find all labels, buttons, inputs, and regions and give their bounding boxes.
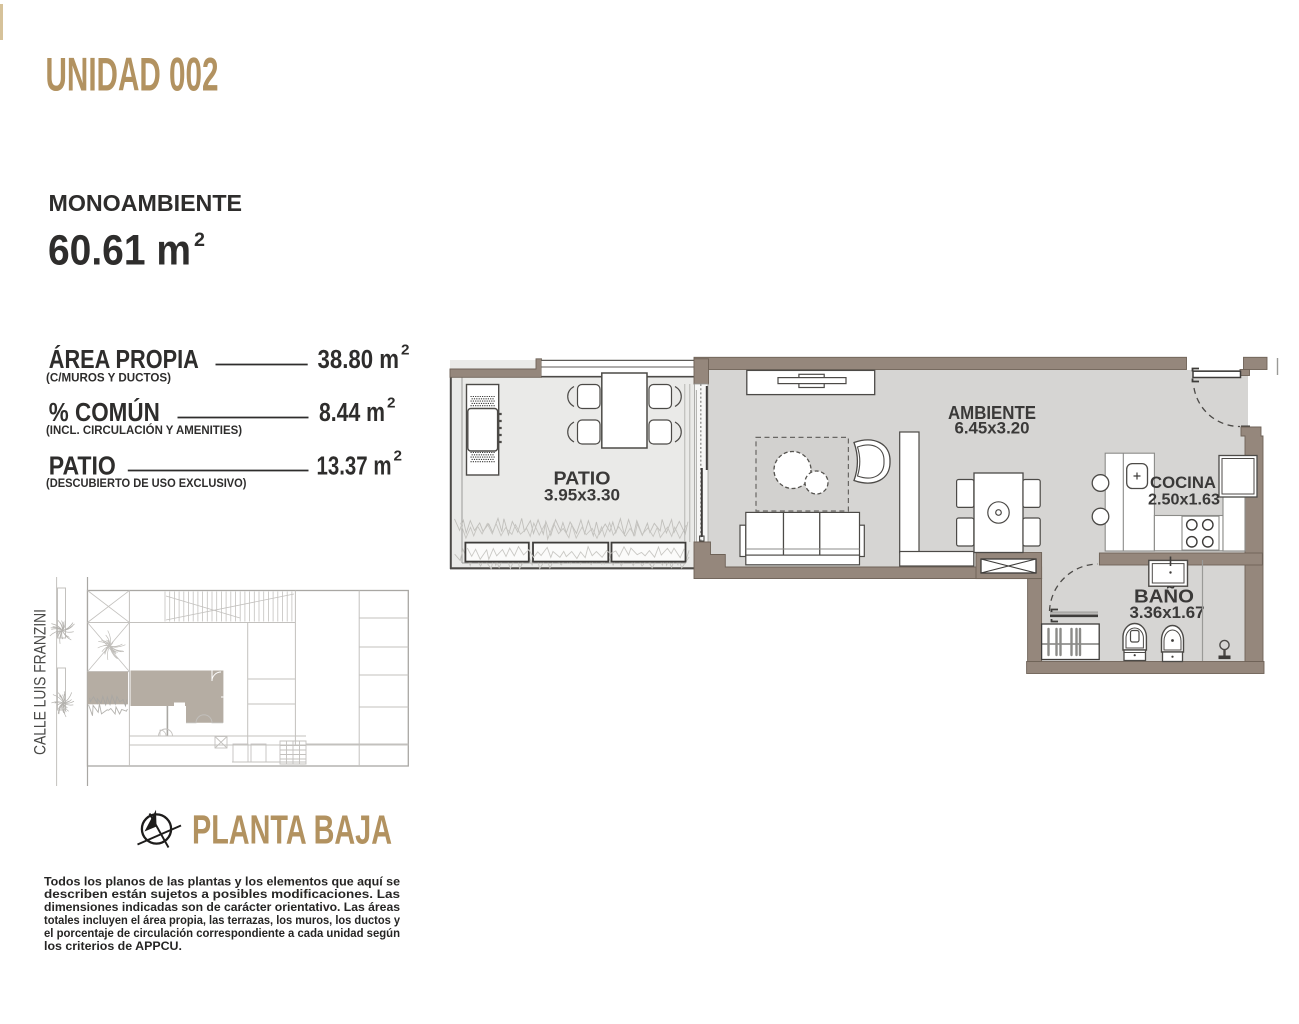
svg-text:3.95x3.30: 3.95x3.30 bbox=[544, 487, 620, 505]
svg-text:COCINA: COCINA bbox=[1150, 474, 1216, 492]
svg-text:2: 2 bbox=[394, 449, 403, 465]
svg-text:3.36x1.67: 3.36x1.67 bbox=[1130, 604, 1205, 622]
svg-text:dimensiones indicadas son de c: dimensiones indicadas son de carácter or… bbox=[44, 900, 400, 914]
svg-text:totales incluyen el área propi: totales incluyen el área propia, las ter… bbox=[44, 913, 400, 927]
svg-text:(INCL. CIRCULACIÓN Y AMENITIES: (INCL. CIRCULACIÓN Y AMENITIES) bbox=[46, 422, 242, 437]
svg-text:13.37 m: 13.37 m bbox=[317, 453, 392, 481]
svg-text:(DESCUBIERTO DE USO EXCLUSIVO): (DESCUBIERTO DE USO EXCLUSIVO) bbox=[46, 476, 247, 490]
svg-text:38.80 m: 38.80 m bbox=[318, 346, 400, 374]
svg-text:2: 2 bbox=[387, 396, 396, 412]
svg-text:2: 2 bbox=[194, 230, 205, 251]
svg-text:MONOAMBIENTE: MONOAMBIENTE bbox=[49, 190, 243, 216]
svg-text:UNIDAD 002: UNIDAD 002 bbox=[46, 48, 219, 101]
svg-text:PATIO: PATIO bbox=[554, 469, 611, 489]
svg-text:Todos los planos de las planta: Todos los planos de las plantas y los el… bbox=[44, 874, 400, 888]
svg-text:2.50x1.63: 2.50x1.63 bbox=[1148, 492, 1220, 509]
svg-text:6.45x3.20: 6.45x3.20 bbox=[955, 420, 1030, 438]
svg-text:2: 2 bbox=[401, 343, 410, 359]
svg-text:60.61 m: 60.61 m bbox=[48, 227, 191, 275]
svg-text:los criterios de APPCU.: los criterios de APPCU. bbox=[44, 939, 182, 953]
svg-text:(C/MUROS Y DUCTOS): (C/MUROS Y DUCTOS) bbox=[46, 371, 171, 385]
svg-text:8.44 m: 8.44 m bbox=[319, 399, 385, 427]
svg-text:CALLE LUIS FRANZINI: CALLE LUIS FRANZINI bbox=[32, 609, 50, 755]
svg-text:PLANTA BAJA: PLANTA BAJA bbox=[192, 807, 392, 853]
svg-text:describen están sujetos a posi: describen están sujetos a posibles modif… bbox=[44, 887, 400, 901]
svg-text:el porcentaje de circulación c: el porcentaje de circulación correspondi… bbox=[44, 926, 400, 940]
